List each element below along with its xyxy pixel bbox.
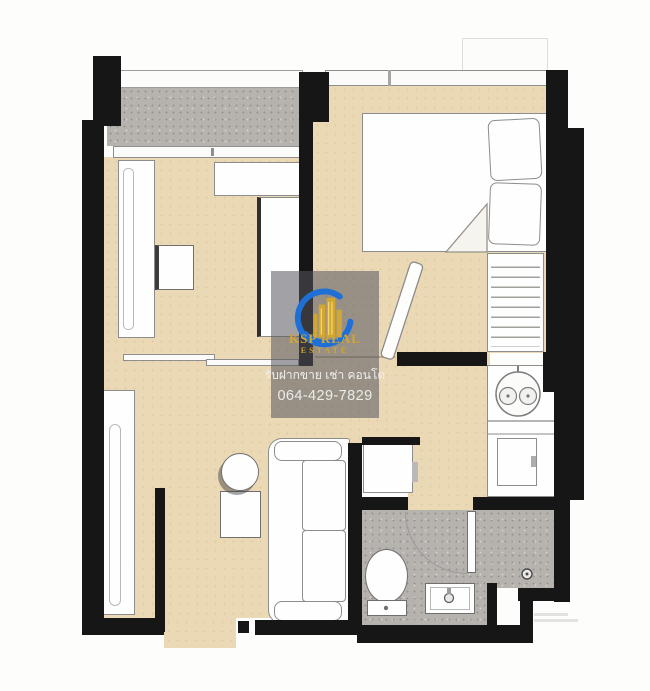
wall-top-left-stub [93, 56, 121, 126]
wall-right-upper [546, 70, 568, 130]
watermark-brand-line2: ESTATE [271, 346, 379, 355]
wall-bottom-bathroom [357, 625, 533, 643]
balcony-sliding-door [113, 146, 301, 158]
watermark-brand-line1: KSP REAL [271, 331, 379, 347]
wall-bathroom-top-right [473, 497, 555, 510]
wall-bottom-middle [255, 620, 357, 635]
fridge [363, 443, 413, 493]
cabinet-door-line [109, 424, 121, 606]
wall-shower-partition [487, 583, 497, 628]
stove-handle [531, 456, 536, 467]
closet-unit [487, 253, 544, 352]
counter-divider-2 [488, 433, 554, 435]
bedroom-window-mullion [388, 70, 391, 86]
wall-bathroom-top-left [355, 497, 408, 510]
wall-right-lower [554, 390, 584, 500]
watermark-box: KSP REAL ESTATE รับฝากขาย เช่า คอนโด 064… [271, 271, 379, 418]
wall-living-partition [155, 488, 165, 632]
floor-entry-spill [164, 618, 236, 648]
sofa-armrest-top [274, 441, 342, 461]
fridge-handle [412, 462, 418, 482]
bathroom-door-leaf [467, 511, 476, 573]
pillow-1 [487, 118, 542, 182]
pillow-2 [488, 182, 542, 246]
wall-closet-bottom [397, 352, 487, 366]
wall-bottom-left [82, 618, 164, 635]
watermark-phone-number: 064-429-7829 [271, 388, 379, 404]
toilet-tank [367, 600, 407, 616]
second-room-bed-line [123, 168, 134, 330]
wall-fridge-nook [362, 437, 420, 445]
watermark-thai-text: รับฝากขาย เช่า คอนโด [261, 366, 389, 385]
second-room-slider-panel-1 [123, 354, 215, 361]
second-room-table [155, 245, 194, 290]
second-room-desk [214, 162, 300, 196]
balcony-floor [107, 88, 300, 146]
sofa-back-cushion-2 [302, 530, 346, 602]
sofa-back-cushion-1 [302, 460, 346, 531]
ac-unit-outline [462, 38, 548, 71]
sofa-armrest-bottom [274, 601, 342, 621]
round-table [221, 453, 259, 491]
toilet-bowl [365, 549, 408, 603]
counter-divider-1 [488, 420, 554, 422]
floor-plan-image: KSP REAL ESTATE รับฝากขาย เช่า คอนโด 064… [0, 0, 650, 691]
dining-chair [220, 491, 261, 538]
fine-print-mark-2 [534, 619, 578, 622]
entry-door-pivot [238, 621, 249, 633]
balcony-railing [103, 70, 303, 88]
wall-left [82, 120, 104, 635]
wall-living-bathroom [348, 443, 362, 633]
wall-right-bathroom [554, 497, 570, 602]
closet-hanger-lines [491, 258, 540, 347]
fine-print-mark-1 [534, 613, 568, 616]
wall-right-main [546, 128, 584, 390]
wall-kitchen-corner [543, 352, 584, 392]
bedroom-window [325, 70, 548, 86]
vanity-basin-line [430, 587, 470, 610]
balcony-slider-notch [211, 148, 214, 156]
